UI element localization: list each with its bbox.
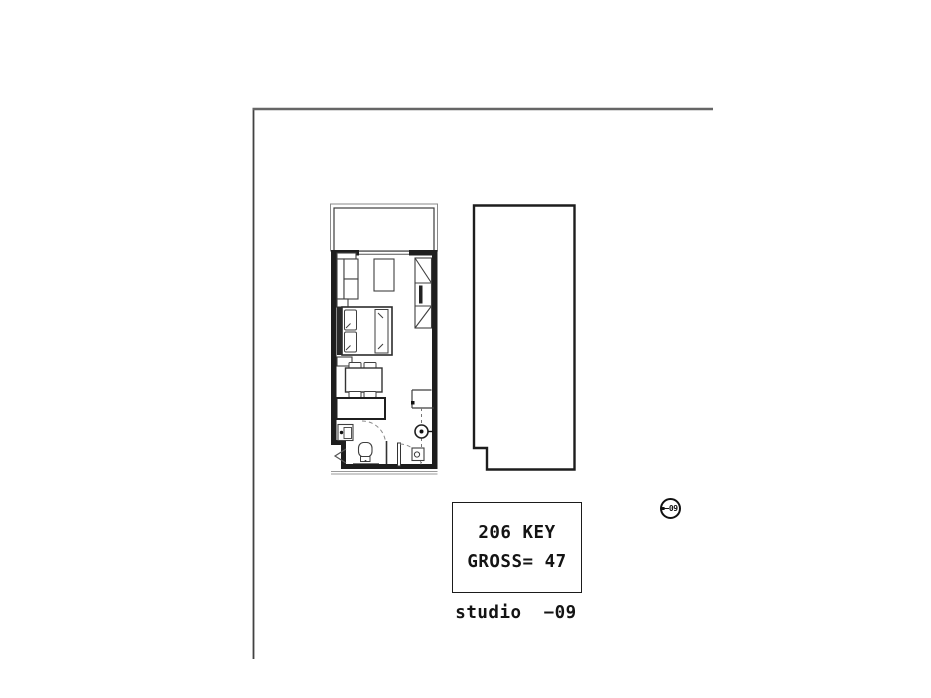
balcony-outline xyxy=(331,204,438,251)
keyplan-marker: 09 xyxy=(660,498,681,519)
faucet-dot xyxy=(340,431,343,434)
wall-right xyxy=(432,250,438,469)
dining-chair xyxy=(349,392,361,398)
bathroom-sink xyxy=(338,425,353,441)
floor-plan-drawing xyxy=(0,0,931,698)
balcony xyxy=(331,204,438,251)
key-label-line2: GROSS= 47 xyxy=(467,548,566,577)
bottom-edge-lines xyxy=(331,472,438,475)
unit-caption: studio −09 xyxy=(446,603,586,623)
wardrobe-rod xyxy=(419,286,423,304)
key-label-box: 206 KEY GROSS= 47 xyxy=(452,502,582,593)
studio-unit-plan xyxy=(331,204,438,474)
drawing-sheet: 206 KEY GROSS= 47 studio −09 09 xyxy=(0,0,931,698)
marker-text: 09 xyxy=(669,505,678,513)
coffee-table xyxy=(374,259,394,291)
service-column xyxy=(411,390,434,463)
key-label-line1: 206 KEY xyxy=(478,519,555,548)
bathroom-door-swing xyxy=(362,421,386,442)
floor-fixture-drain xyxy=(414,452,419,457)
kitchen-counter xyxy=(337,398,386,419)
adjacent-unit-outline xyxy=(474,206,575,470)
shower-partition xyxy=(412,390,434,408)
sofa xyxy=(337,253,358,307)
wall-bottom xyxy=(341,464,438,469)
bed xyxy=(337,307,392,355)
dining-set xyxy=(346,363,383,398)
entry-door-leaf xyxy=(398,443,401,466)
dining-table xyxy=(346,368,383,392)
wardrobe xyxy=(415,258,432,328)
toilet xyxy=(353,443,379,464)
balcony-door xyxy=(359,251,409,254)
dining-chair xyxy=(364,392,376,398)
